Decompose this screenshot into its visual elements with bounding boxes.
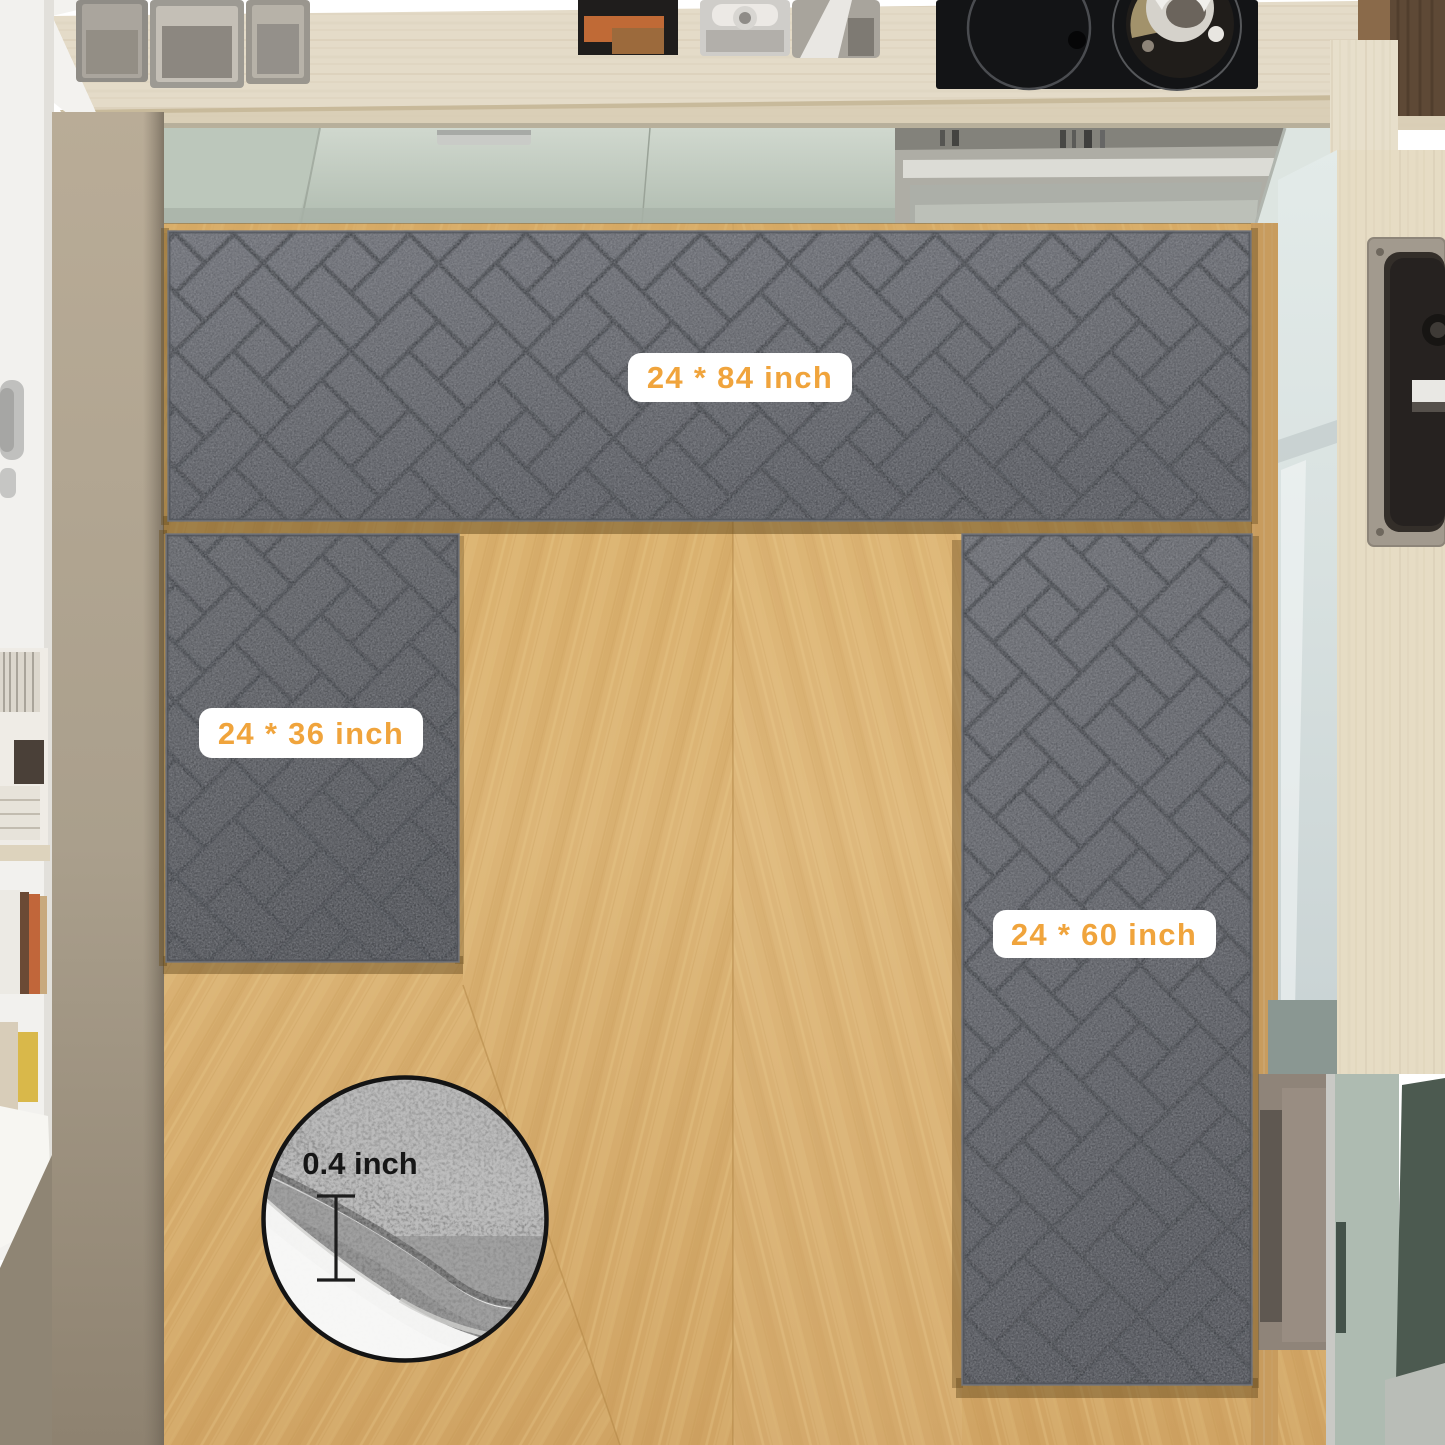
svg-text:0.4 inch: 0.4 inch bbox=[302, 1146, 417, 1181]
svg-text:24 * 36 inch: 24 * 36 inch bbox=[218, 716, 404, 751]
svg-text:24 * 84 inch: 24 * 84 inch bbox=[647, 360, 833, 395]
svg-text:24 * 60 inch: 24 * 60 inch bbox=[1011, 917, 1197, 952]
